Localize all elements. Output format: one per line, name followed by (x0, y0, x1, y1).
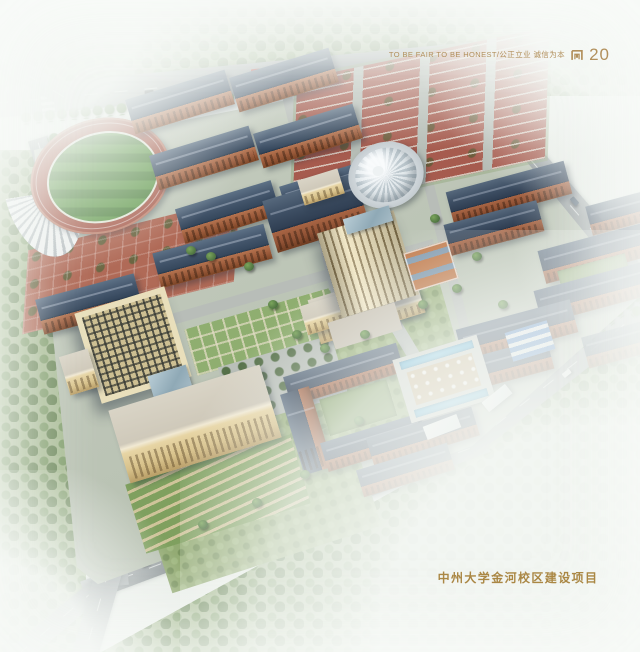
tree (360, 330, 370, 339)
header-caption: TO BE FAIR TO BE HONEST/公正立业 诚信为本 20 (389, 46, 610, 63)
car (570, 196, 579, 206)
tree (244, 262, 254, 271)
company-slogan: TO BE FAIR TO BE HONEST/公正立业 诚信为本 (389, 49, 565, 60)
tree (472, 252, 482, 261)
tree (292, 330, 302, 339)
brand-logo-icon (570, 48, 584, 62)
project-title: 中州大学金河校区建设项目 (437, 569, 599, 586)
tree (320, 344, 330, 353)
page-number: 20 (589, 46, 610, 63)
tree (430, 214, 440, 223)
tree (268, 300, 278, 309)
tree (418, 300, 428, 309)
tree (186, 246, 196, 255)
slogan-zh: 公正立业 诚信为本 (499, 50, 565, 59)
tree (206, 252, 216, 261)
tree (452, 284, 462, 293)
tree (252, 498, 262, 507)
slogan-en: TO BE FAIR TO BE HONEST (389, 50, 497, 59)
tree (198, 520, 208, 529)
car (562, 369, 572, 378)
tree (498, 300, 508, 309)
tree (300, 470, 310, 479)
tree (354, 416, 364, 425)
rendering-canvas: TO BE FAIR TO BE HONEST/公正立业 诚信为本 20 中州大… (0, 0, 640, 652)
